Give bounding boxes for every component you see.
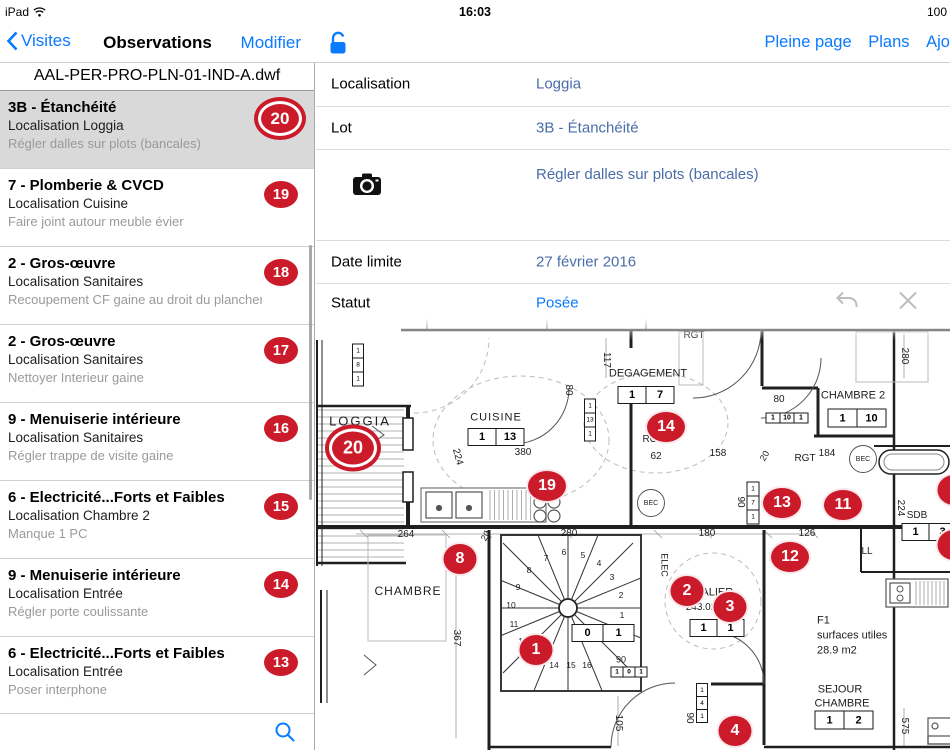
detail-row-statut[interactable]: Statut Posée <box>316 284 950 322</box>
observation-count-badge: 15 <box>264 493 298 520</box>
detail-row-lot[interactable]: Lot 3B - Étanchéité <box>316 107 950 150</box>
observation-list-item[interactable]: 2 - Gros-œuvreLocalisation SanitairesRec… <box>0 247 314 325</box>
plan-label: SDB <box>907 511 928 521</box>
plan-table-cell: 1 <box>604 625 634 641</box>
plan-table: 110 <box>828 409 887 428</box>
plan-label: 90 <box>684 712 694 723</box>
plan-observation-badge[interactable]: 3 <box>712 590 749 624</box>
plan-table-cell: 1 <box>816 712 845 729</box>
plan-label: LL <box>861 547 872 557</box>
undo-icon[interactable] <box>834 290 860 317</box>
plan-table-cell: 2 <box>845 712 873 729</box>
plan-label: 28.9 m2 <box>817 646 857 657</box>
plan-table-cell: 1 <box>691 620 718 636</box>
plan-label: 264 <box>398 530 415 540</box>
stair-step-number: 10 <box>506 600 515 610</box>
plan-table: 12 <box>815 711 874 730</box>
battery-percent: 100 <box>927 5 947 19</box>
plans-button[interactable]: Plans <box>868 33 909 51</box>
observations-sidebar: AAL-PER-PRO-PLN-01-IND-A.dwf 3B - Étanch… <box>0 62 315 750</box>
stair-step-number: 7 <box>544 553 549 563</box>
observation-title: 9 - Menuiserie intérieure <box>8 566 262 585</box>
observation-count-badge: 13 <box>264 649 298 676</box>
nav-links: Pleine page Plans Ajo <box>753 33 950 52</box>
field-label: Statut <box>331 295 370 312</box>
observation-location: Localisation Sanitaires <box>8 429 262 447</box>
observation-location: Localisation Sanitaires <box>8 351 262 369</box>
plan-label: 126 <box>799 529 816 539</box>
plan-label: BEC <box>637 489 665 517</box>
plan-label: 80 <box>773 395 784 405</box>
app-window: iPad 16:03 100 Visites Observations Modi… <box>0 0 950 750</box>
observation-location: Localisation Cuisine <box>8 195 262 213</box>
observation-title: 9 - Menuiserie intérieure <box>8 410 262 429</box>
observation-note: Régler dalles sur plots (bancales) <box>8 135 262 152</box>
plan-label: CHAMBRE <box>374 585 441 597</box>
sidebar-scrollbar[interactable] <box>309 245 312 500</box>
plan-table-cell: 7 <box>748 497 759 511</box>
observation-list-item[interactable]: 7 - Plomberie & CVCDLocalisation Cuisine… <box>0 169 314 247</box>
plan-label: 117 <box>601 352 611 368</box>
observation-note: Régler porte coulissante <box>8 603 262 620</box>
camera-icon[interactable] <box>352 172 382 201</box>
observation-location: Localisation Entrée <box>8 663 262 681</box>
field-value[interactable]: Posée <box>536 295 579 312</box>
plan-table-cell: 1 <box>612 668 624 677</box>
plan-label: 158 <box>710 449 727 459</box>
full-page-button[interactable]: Pleine page <box>765 33 852 51</box>
observation-title: 6 - Electricité...Forts et Faibles <box>8 488 262 507</box>
stair-step-number: 16 <box>582 660 591 670</box>
observation-title: 6 - Electricité...Forts et Faibles <box>8 644 262 663</box>
observation-count-badge: 19 <box>264 181 298 208</box>
field-value[interactable]: 3B - Étanchéité <box>536 120 639 137</box>
plan-observation-badge[interactable]: 13 <box>761 486 803 520</box>
observation-note: Faire joint autour meuble évier <box>8 213 262 230</box>
plan-table-cell: 4 <box>697 697 707 710</box>
detail-row-date-limite[interactable]: Date limite 27 février 2016 <box>316 241 950 284</box>
plan-label: DEGAGEMENT <box>609 369 687 380</box>
plan-label: RGT <box>794 454 815 464</box>
plan-label: CHAMBRE 2 <box>821 391 885 402</box>
search-icon[interactable] <box>274 721 296 748</box>
status-bar: iPad 16:03 100 <box>0 0 950 24</box>
plan-label: 62 <box>650 452 661 462</box>
plan-label: 105 <box>613 715 623 732</box>
plan-label: 224 <box>895 500 905 517</box>
plan-table-cell: 1 <box>795 414 808 423</box>
plan-table-cell: 0 <box>573 625 604 641</box>
plan-observation-badge[interactable]: 8 <box>442 542 479 576</box>
plan-table-cell: 1 <box>353 345 363 359</box>
plan-observation-badge[interactable]: 1 <box>518 633 555 667</box>
stair-step-number: 15 <box>566 660 575 670</box>
plan-table-cell: 1 <box>748 511 759 524</box>
plan-label: BEC <box>849 445 877 473</box>
plan-table-cell: 1 <box>585 428 595 441</box>
plan-observation-badge[interactable]: 11 <box>822 488 864 522</box>
plan-top-fade <box>316 318 950 340</box>
stair-step-number: 3 <box>610 572 615 582</box>
plan-table-cell: 10 <box>781 414 795 423</box>
detail-row-localisation[interactable]: Localisation Loggia <box>316 62 950 107</box>
edit-button[interactable]: Modifier <box>241 33 301 53</box>
plan-table: 17 <box>618 386 675 404</box>
observation-location: Localisation Chambre 2 <box>8 507 262 525</box>
plan-label: SEJOUR <box>818 685 863 696</box>
stair-step-number: 1 <box>620 610 625 620</box>
observation-title: 7 - Plomberie & CVCD <box>8 176 262 195</box>
plan-table-cell: 1 <box>619 387 647 403</box>
field-label: Localisation <box>331 76 410 93</box>
clock: 16:03 <box>0 5 950 19</box>
observation-list-item[interactable]: 2 - Gros-œuvreLocalisation SanitairesNet… <box>0 325 314 403</box>
plan-table: 141 <box>696 683 708 723</box>
unlock-icon[interactable] <box>329 30 349 60</box>
plan-label: 380 <box>515 448 532 458</box>
plan-table-cell: 13 <box>585 414 595 428</box>
plan-observation-badge[interactable]: 12 <box>769 540 811 574</box>
observation-count-badge: 18 <box>264 259 298 286</box>
plan-label: 80 <box>563 384 573 395</box>
observation-list-item[interactable]: 9 - Menuiserie intérieureLocalisation Sa… <box>0 403 314 481</box>
plan-observation-badge[interactable]: 19 <box>526 469 568 503</box>
plan-table-cell: 7 <box>647 387 674 403</box>
plan-table: 181 <box>352 344 364 387</box>
plan-observation-badge[interactable]: 20 <box>325 425 381 472</box>
plan-table-cell: 1 <box>585 400 595 414</box>
observation-title: 3B - Étanchéité <box>8 98 262 117</box>
observation-count-badge: 14 <box>264 571 298 598</box>
navigation-bar: Visites Observations Modifier Pleine pag… <box>0 24 950 63</box>
close-icon[interactable] <box>898 291 918 316</box>
stair-step-number: 5 <box>581 550 586 560</box>
field-label: Lot <box>331 120 352 137</box>
field-value[interactable]: 27 février 2016 <box>536 254 636 271</box>
observation-count-badge: 20 <box>254 97 306 140</box>
plan-label: 90 <box>616 656 626 665</box>
plan-table: 01 <box>572 624 635 642</box>
plan-table-cell: 1 <box>697 684 707 697</box>
plan-label: 367 <box>451 630 461 647</box>
plan-label: surfaces utiles <box>817 631 887 642</box>
plan-table-cell: 1 <box>469 429 497 445</box>
plan-table-cell: 8 <box>353 359 363 373</box>
observation-count-badge: 17 <box>264 337 298 364</box>
stair-step-number: 8 <box>527 565 532 575</box>
observation-list: 3B - ÉtanchéitéLocalisation LoggiaRégler… <box>0 91 314 715</box>
plan-observation-badge[interactable]: 2 <box>669 574 706 608</box>
observation-list-item[interactable]: 6 - Electricité...Forts et FaiblesLocali… <box>0 637 314 715</box>
search-row <box>0 713 314 750</box>
plan-label: 184 <box>819 449 836 459</box>
observation-location: Localisation Loggia <box>8 117 262 135</box>
observation-note: Recoupement CF gaine au droit du planche… <box>8 291 262 308</box>
sidebar-nav: Visites Observations Modifier <box>0 24 315 62</box>
plan-table-cell: 10 <box>858 410 886 427</box>
add-button[interactable]: Ajo <box>926 33 950 51</box>
stair-step-number: 9 <box>516 582 521 592</box>
observation-title: 2 - Gros-œuvre <box>8 332 262 351</box>
observation-list-item[interactable]: 3B - ÉtanchéitéLocalisation LoggiaRégler… <box>0 91 314 169</box>
plan-label: 90 <box>735 496 745 507</box>
plan-label: 180 <box>699 529 716 539</box>
observation-detail-panel: Localisation Loggia Lot 3B - Étanchéité … <box>316 62 950 318</box>
plan-observation-badge[interactable]: 14 <box>645 410 687 444</box>
plan-table-cell: 1 <box>829 410 858 427</box>
observation-note: Régler trappe de visite gaine <box>8 447 262 464</box>
stair-step-number: 11 <box>510 619 519 629</box>
plan-table: 171 <box>747 482 760 525</box>
plan-table-cell: 1 <box>636 668 647 677</box>
observation-count-badge: 16 <box>264 415 298 442</box>
plan-table-cell: 0 <box>624 668 636 677</box>
plan-table-cell: 1 <box>748 483 759 497</box>
plan-table-cell: 13 <box>497 429 524 445</box>
floor-plan[interactable]: LOGGIACUISINERGT117DEGAGEMENT80CHAMBRE 2… <box>316 318 950 750</box>
plan-observation-badge[interactable]: 4 <box>717 714 754 748</box>
plan-label: 575 <box>899 718 909 735</box>
detail-row-photo-note[interactable]: Régler dalles sur plots (bancales) <box>316 150 950 241</box>
plan-label: CHAMBRE <box>814 699 869 710</box>
plan-table-cell: 1 <box>697 710 707 722</box>
observation-title: 2 - Gros-œuvre <box>8 254 262 273</box>
detail-nav: Pleine page Plans Ajo <box>315 24 950 62</box>
field-value[interactable]: Loggia <box>536 76 581 93</box>
plan-table-cell: 1 <box>767 414 781 423</box>
plan-file-name: AAL-PER-PRO-PLN-01-IND-A.dwf <box>0 62 314 91</box>
plan-table: 101 <box>611 667 648 678</box>
plan-label: F1 <box>817 616 830 627</box>
plan-label: 280 <box>899 348 909 365</box>
observation-note: Poser interphone <box>8 681 262 698</box>
stair-step-number: 6 <box>562 547 567 557</box>
observation-list-item[interactable]: 9 - Menuiserie intérieureLocalisation En… <box>0 559 314 637</box>
field-value[interactable]: Régler dalles sur plots (bancales) <box>536 166 759 183</box>
observation-note: Manque 1 PC <box>8 525 262 542</box>
observation-note: Nettoyer Interieur gaine <box>8 369 262 386</box>
plan-table: 1101 <box>766 413 809 424</box>
stair-step-number: 14 <box>549 660 558 670</box>
plan-table: 1131 <box>584 399 596 442</box>
plan-label: 280 <box>561 529 578 539</box>
plan-table: 113 <box>468 428 525 446</box>
observation-location: Localisation Entrée <box>8 585 262 603</box>
stair-step-number: 4 <box>597 558 602 568</box>
plan-table-cell: 1 <box>353 373 363 386</box>
observation-list-item[interactable]: 6 - Electricité...Forts et FaiblesLocali… <box>0 481 314 559</box>
plan-table-cell: 1 <box>903 524 930 540</box>
observation-location: Localisation Sanitaires <box>8 273 262 291</box>
field-label: Date limite <box>331 254 402 271</box>
plan-label: ELEC <box>660 553 669 577</box>
plan-label: CUISINE <box>470 413 522 424</box>
stair-step-number: 2 <box>619 590 624 600</box>
